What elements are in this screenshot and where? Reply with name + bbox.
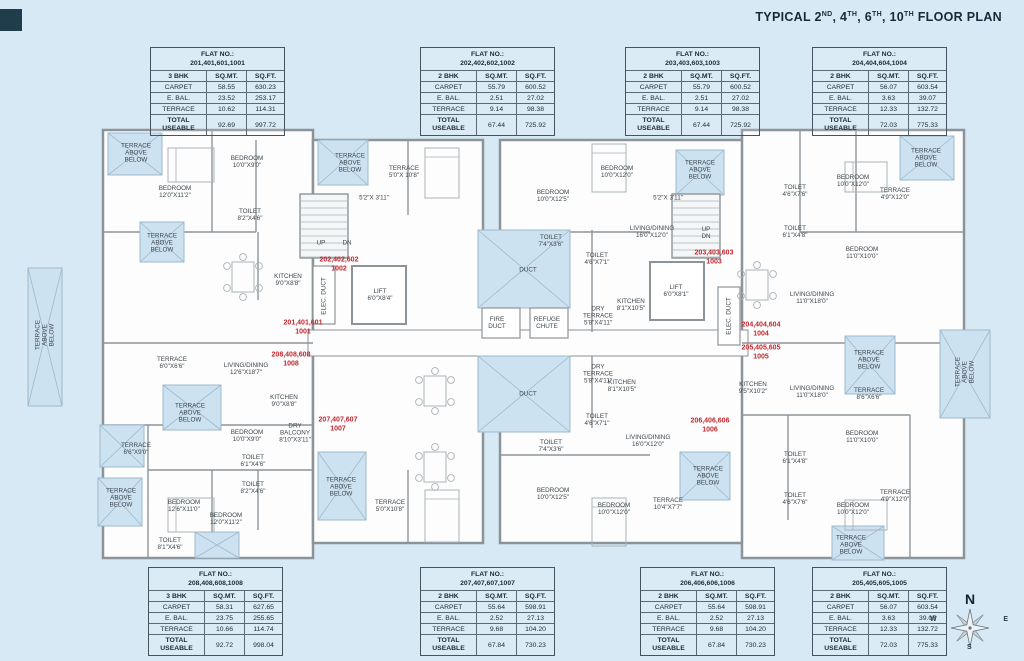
table-cell: TERRACE <box>421 624 477 634</box>
table-row: E. BAL.23.52253.17 <box>151 93 284 104</box>
table-cell: 67.44 <box>682 115 722 134</box>
room-label: KITCHEN 9'0"X8'8" <box>270 394 298 408</box>
flat-no-header: FLAT NO.:206,406,606,1006 <box>641 568 774 591</box>
room-label: DUCT <box>519 390 537 397</box>
room-label: FIRE DUCT <box>488 316 506 330</box>
table-cell: TERRACE <box>151 104 207 114</box>
table-cell: 58.31 <box>205 602 245 612</box>
room-label: TERRACE ABOVE BELOW <box>911 147 941 168</box>
table-cell: SQ.MT. <box>205 591 245 601</box>
room-label: TERRACE 4'9"X12'0" <box>880 489 910 503</box>
table-row: TOTAL USEABLE67.84730.23 <box>641 635 774 654</box>
table-row: E. BAL.2.5127.02 <box>421 93 554 104</box>
table-row: TOTAL USEABLE67.44725.92 <box>421 115 554 134</box>
flat-number-label: 201,401,601 1001 <box>284 319 323 337</box>
compass-rose: N W E S <box>938 592 1002 658</box>
table-row: 2 BHKSQ.MT.SQ.FT. <box>813 591 946 602</box>
flat-number-label: 206,406,606 1006 <box>691 417 730 435</box>
table-cell: 598.91 <box>737 602 774 612</box>
room-label: TOILET 4'6"X7'6" <box>782 492 807 506</box>
room-label: DN <box>342 239 351 246</box>
table-cell: 114.31 <box>247 104 284 114</box>
flat-number-label: 208,408,608 1008 <box>272 351 311 369</box>
floor-plan-sheet: TYPICAL 2ND, 4TH, 6TH, 10TH FLOOR PLAN F… <box>0 0 1024 661</box>
table-cell: 67.84 <box>697 635 737 654</box>
flat-number-label: 204,404,604 1004 <box>742 321 781 339</box>
room-label: TERRACE 5'0"X 10'8" <box>389 165 419 179</box>
table-cell: 725.92 <box>517 115 554 134</box>
room-label: TERRACE ABOVE BELOW <box>106 487 136 508</box>
table-row: CARPET58.55630.23 <box>151 82 284 93</box>
table-cell: E. BAL. <box>421 613 477 623</box>
table-cell: 3 BHK <box>149 591 205 601</box>
flat-no-header: FLAT NO.:208,408,608,1008 <box>149 568 282 591</box>
table-row: TERRACE9.68104.20 <box>641 624 774 635</box>
table-row: 3 BHKSQ.MT.SQ.FT. <box>151 71 284 82</box>
room-label: TERRACE ABOVE BELOW <box>326 476 356 497</box>
table-cell: 55.64 <box>697 602 737 612</box>
room-label: LIFT 6'0"X8'4" <box>367 288 392 302</box>
flat-info-table: FLAT NO.:208,408,608,10083 BHKSQ.MT.SQ.F… <box>148 567 283 656</box>
flat-no-header: FLAT NO.:201,401,601,1001 <box>151 48 284 71</box>
room-label: LIFT 6'0"X8'1" <box>663 284 688 298</box>
table-cell: E. BAL. <box>813 93 869 103</box>
table-cell: 104.20 <box>737 624 774 634</box>
room-label: TOILET 4'6"X7'1" <box>584 252 609 266</box>
table-cell: SQ.MT. <box>869 71 909 81</box>
room-label: TERRACE ABOVE BELOW <box>147 232 177 253</box>
room-label: 5'2"X 3'11" <box>653 194 683 201</box>
room-label: TOILET 8'2"X4'6" <box>240 481 265 495</box>
room-label: TERRACE ABOVE BELOW <box>335 152 365 173</box>
room-label: TERRACE ABOVE BELOW <box>34 320 55 350</box>
table-cell: TERRACE <box>813 104 869 114</box>
table-cell: CARPET <box>813 82 869 92</box>
table-cell: 2 BHK <box>813 591 869 601</box>
table-row: TOTAL USEABLE67.44725.92 <box>626 115 759 134</box>
table-row: TOTAL USEABLE72.03775.33 <box>813 115 946 134</box>
room-label: DUCT <box>519 266 537 273</box>
table-cell: SQ.MT. <box>207 71 247 81</box>
table-row: E. BAL.2.5127.02 <box>626 93 759 104</box>
table-cell: 72.03 <box>869 635 909 654</box>
room-label: TOILET 4'6"X7'1" <box>584 413 609 427</box>
room-label: TERRACE 5'0"X10'8" <box>375 499 405 513</box>
table-cell: CARPET <box>813 602 869 612</box>
table-cell: 730.23 <box>517 635 554 654</box>
room-label: TERRACE ABOVE BELOW <box>854 349 884 370</box>
table-cell: SQ.MT. <box>682 71 722 81</box>
table-cell: 39.07 <box>909 93 946 103</box>
table-cell: 23.75 <box>205 613 245 623</box>
table-cell: SQ.MT. <box>477 71 517 81</box>
table-cell: 2.51 <box>682 93 722 103</box>
compass-east-label: E <box>1003 616 1008 623</box>
table-cell: 10.62 <box>207 104 247 114</box>
table-cell: 725.92 <box>722 115 759 134</box>
room-label: 5'2"X 3'11" <box>359 194 389 201</box>
table-row: TOTAL USEABLE67.84730.23 <box>421 635 554 654</box>
room-label: TOILET 8'1"X4'6" <box>157 537 182 551</box>
room-label: TOILET 7'4"X3'6" <box>538 234 563 248</box>
table-row: 2 BHKSQ.MT.SQ.FT. <box>813 71 946 82</box>
table-cell: 2.52 <box>697 613 737 623</box>
table-cell: TERRACE <box>149 624 205 634</box>
table-cell: 255.65 <box>245 613 282 623</box>
table-cell: 92.69 <box>207 115 247 134</box>
flat-number-label: 203,403,603 1003 <box>695 249 734 267</box>
table-cell: SQ.FT. <box>517 71 554 81</box>
table-cell: 630.23 <box>247 82 284 92</box>
table-cell: TOTAL USEABLE <box>421 635 477 654</box>
table-cell: TOTAL USEABLE <box>813 635 869 654</box>
table-cell: 67.84 <box>477 635 517 654</box>
table-cell: 55.79 <box>682 82 722 92</box>
table-cell: 114.74 <box>245 624 282 634</box>
table-row: E. BAL.23.75255.65 <box>149 613 282 624</box>
table-cell: E. BAL. <box>149 613 205 623</box>
room-label: TOILET 6'1"X4'8" <box>782 225 807 239</box>
table-row: E. BAL.2.5227.13 <box>641 613 774 624</box>
room-label: REFUGE CHUTE <box>534 316 560 330</box>
table-row: 2 BHKSQ.MT.SQ.FT. <box>421 591 554 602</box>
flat-info-table: FLAT NO.:205,405,605,10052 BHKSQ.MT.SQ.F… <box>812 567 947 656</box>
table-cell: 56.07 <box>869 602 909 612</box>
room-label: TOILET 6'1"X4'8" <box>782 451 807 465</box>
table-cell: 2 BHK <box>421 71 477 81</box>
room-label: BEDROOM 10'0"X12'0" <box>837 502 870 516</box>
table-row: CARPET55.64598.91 <box>421 602 554 613</box>
table-cell: E. BAL. <box>421 93 477 103</box>
table-row: CARPET55.79600.52 <box>626 82 759 93</box>
room-label: BEDROOM 11'0"X10'0" <box>846 430 879 444</box>
table-cell: 67.44 <box>477 115 517 134</box>
table-row: 2 BHKSQ.MT.SQ.FT. <box>626 71 759 82</box>
table-cell: TOTAL USEABLE <box>641 635 697 654</box>
compass-south-label: S <box>967 644 972 651</box>
flat-info-table: FLAT NO.:206,406,606,10062 BHKSQ.MT.SQ.F… <box>640 567 775 656</box>
room-label: KITCHEN 9'0"X8'8" <box>274 273 302 287</box>
table-cell: 730.23 <box>737 635 774 654</box>
table-cell: 2.51 <box>477 93 517 103</box>
flat-number-label: 205,405,605 1005 <box>742 344 781 362</box>
room-label: BEDROOM 10'0"X9'0" <box>231 155 264 169</box>
table-cell: 92.72 <box>205 635 245 654</box>
table-cell: 27.13 <box>737 613 774 623</box>
table-cell: 2 BHK <box>641 591 697 601</box>
flat-number-label: 202,402,602 1002 <box>320 256 359 274</box>
table-cell: SQ.FT. <box>909 71 946 81</box>
table-row: CARPET55.64598.91 <box>641 602 774 613</box>
room-label: BEDROOM 10'0"X9'0" <box>231 429 264 443</box>
room-label: ELEC. DUCT <box>320 277 327 314</box>
flat-no-header: FLAT NO.:205,405,605,1005 <box>813 568 946 591</box>
table-cell: SQ.FT. <box>247 71 284 81</box>
room-label: TOILET 6'1"X4'6" <box>240 454 265 468</box>
flat-no-header: FLAT NO.:207,407,607,1007 <box>421 568 554 591</box>
room-label: LIVING/DINING 16'0"X12'0" <box>626 434 670 448</box>
room-label: TERRACE ABOVE BELOW <box>836 534 866 555</box>
table-cell: 27.13 <box>517 613 554 623</box>
table-row: 2 BHKSQ.MT.SQ.FT. <box>421 71 554 82</box>
table-row: CARPET55.79600.52 <box>421 82 554 93</box>
flat-info-table: FLAT NO.:203,403,603,10032 BHKSQ.MT.SQ.F… <box>625 47 760 136</box>
flat-no-header: FLAT NO.:204,404,604,1004 <box>813 48 946 71</box>
flat-info-table: FLAT NO.:202,402,602,10022 BHKSQ.MT.SQ.F… <box>420 47 555 136</box>
table-cell: 2 BHK <box>626 71 682 81</box>
flat-no-header: FLAT NO.:203,403,603,1003 <box>626 48 759 71</box>
table-cell: 998.04 <box>245 635 282 654</box>
room-label: TERRACE ABOVE BELOW <box>121 142 151 163</box>
table-cell: 600.52 <box>517 82 554 92</box>
room-label: TERRACE ABOVE BELOW <box>693 465 723 486</box>
table-cell: 9.68 <box>477 624 517 634</box>
table-cell: CARPET <box>641 602 697 612</box>
room-label: TOILET 7'4"X3'6" <box>538 439 563 453</box>
room-label: KITCHEN 9'5"X10'2" <box>739 381 768 395</box>
flat-info-table: FLAT NO.:207,407,607,10072 BHKSQ.MT.SQ.F… <box>420 567 555 656</box>
flat-info-table: FLAT NO.:201,401,601,10013 BHKSQ.MT.SQ.F… <box>150 47 285 136</box>
room-label: BEDROOM 10'0"X12'0" <box>598 502 631 516</box>
room-label: BEDROOM 11'0"X10'0" <box>846 246 879 260</box>
table-cell: CARPET <box>421 82 477 92</box>
room-label: LIVING/DINING 11'0"X18'0" <box>790 291 834 305</box>
table-row: CARPET56.07603.54 <box>813 602 946 613</box>
table-cell: SQ.MT. <box>869 591 909 601</box>
flat-info-table: FLAT NO.:204,404,604,10042 BHKSQ.MT.SQ.F… <box>812 47 947 136</box>
room-label: UP <box>317 239 326 246</box>
table-row: TERRACE12.33132.72 <box>813 104 946 115</box>
table-cell: 2 BHK <box>421 591 477 601</box>
compass-west-label: W <box>930 616 937 623</box>
table-cell: TOTAL USEABLE <box>151 115 207 134</box>
table-cell: SQ.MT. <box>697 591 737 601</box>
table-cell: 98.38 <box>722 104 759 114</box>
room-label: LIVING/DINING 16'0"X12'0" <box>630 225 674 239</box>
table-cell: 598.91 <box>517 602 554 612</box>
table-row: E. BAL.3.6339.07 <box>813 613 946 624</box>
room-label: DRY BALCONY 8'10"X3'11" <box>279 422 311 443</box>
table-row: TERRACE10.66114.74 <box>149 624 282 635</box>
table-cell: 23.52 <box>207 93 247 103</box>
room-label: ELEC. DUCT <box>725 297 732 334</box>
table-row: 3 BHKSQ.MT.SQ.FT. <box>149 591 282 602</box>
room-label: TOILET 8'2"X4'6" <box>237 208 262 222</box>
room-label: KITCHEN 8'1"X10'5" <box>608 379 637 393</box>
table-row: TERRACE9.1498.38 <box>421 104 554 115</box>
table-cell: CARPET <box>626 82 682 92</box>
table-row: CARPET58.31627.65 <box>149 602 282 613</box>
room-label: TERRACE 6'0"X6'6" <box>157 356 187 370</box>
table-row: E. BAL.3.6339.07 <box>813 93 946 104</box>
room-label: BEDROOM 10'0"X12'5" <box>537 487 570 501</box>
table-cell: E. BAL. <box>641 613 697 623</box>
table-row: E. BAL.2.5227.13 <box>421 613 554 624</box>
room-label: TERRACE ABOVE BELOW <box>685 159 715 180</box>
table-cell: 10.66 <box>205 624 245 634</box>
table-cell: E. BAL. <box>626 93 682 103</box>
table-cell: 600.52 <box>722 82 759 92</box>
room-label: TERRACE 10'4"X7'7" <box>653 497 683 511</box>
table-cell: TERRACE <box>421 104 477 114</box>
room-label: TERRACE 8'6"X6'6" <box>854 387 884 401</box>
table-cell: TERRACE <box>641 624 697 634</box>
room-label: DRY TERRACE 5'8"X4'11" <box>583 305 613 326</box>
table-cell: TOTAL USEABLE <box>421 115 477 134</box>
table-cell: 253.17 <box>247 93 284 103</box>
table-cell: E. BAL. <box>151 93 207 103</box>
room-label: BEDROOM 12'0"X11'2" <box>159 185 192 199</box>
table-cell: TERRACE <box>813 624 869 634</box>
table-cell: 603.54 <box>909 82 946 92</box>
table-cell: E. BAL. <box>813 613 869 623</box>
table-cell: 2 BHK <box>813 71 869 81</box>
table-cell: SQ.FT. <box>245 591 282 601</box>
table-cell: 55.64 <box>477 602 517 612</box>
table-cell: 3 BHK <box>151 71 207 81</box>
table-cell: 58.55 <box>207 82 247 92</box>
table-cell: CARPET <box>149 602 205 612</box>
room-label: BEDROOM 10'0"X12'0" <box>601 165 634 179</box>
table-cell: 627.65 <box>245 602 282 612</box>
table-cell: 775.33 <box>909 115 946 134</box>
table-cell: 12.33 <box>869 104 909 114</box>
table-cell: 104.20 <box>517 624 554 634</box>
room-label: BEDROOM 10'0"X12'5" <box>537 189 570 203</box>
table-row: TERRACE9.1498.38 <box>626 104 759 115</box>
table-cell: SQ.MT. <box>477 591 517 601</box>
table-row: TERRACE9.68104.20 <box>421 624 554 635</box>
table-cell: 132.72 <box>909 104 946 114</box>
room-label: TERRACE ABOVE BELOW <box>175 402 205 423</box>
room-label: BEDROOM 10'0"X12'0" <box>837 174 870 188</box>
table-cell: SQ.FT. <box>517 591 554 601</box>
table-cell: 3.63 <box>869 93 909 103</box>
room-label: LIVING/DINING 12'6"X18'7" <box>224 362 268 376</box>
room-label: BEDROOM 12'0"X11'2" <box>210 512 243 526</box>
table-cell: TOTAL USEABLE <box>813 115 869 134</box>
table-cell: 9.14 <box>682 104 722 114</box>
table-cell: 9.14 <box>477 104 517 114</box>
table-cell: CARPET <box>421 602 477 612</box>
table-cell: 27.02 <box>722 93 759 103</box>
table-cell: 997.72 <box>247 115 284 134</box>
table-cell: 98.38 <box>517 104 554 114</box>
table-row: TOTAL USEABLE92.72998.04 <box>149 635 282 654</box>
table-row: TERRACE10.62114.31 <box>151 104 284 115</box>
room-label: UP DN <box>701 226 710 240</box>
table-cell: CARPET <box>151 82 207 92</box>
table-cell: TOTAL USEABLE <box>149 635 205 654</box>
table-cell: 56.07 <box>869 82 909 92</box>
table-row: TERRACE12.33132.72 <box>813 624 946 635</box>
room-label: TERRACE ABOVE BELOW <box>954 357 975 387</box>
room-label: TERRACE 4'9"X12'0" <box>880 187 910 201</box>
flat-no-header: FLAT NO.:202,402,602,1002 <box>421 48 554 71</box>
table-row: 2 BHKSQ.MT.SQ.FT. <box>641 591 774 602</box>
table-cell: TERRACE <box>626 104 682 114</box>
table-cell: TOTAL USEABLE <box>626 115 682 134</box>
room-label: LIVING/DINING 11'0"X18'0" <box>790 385 834 399</box>
room-label: TERRACE 6'6"X9'0" <box>121 442 151 456</box>
room-label: TOILET 4'6"X7'6" <box>782 184 807 198</box>
table-cell: 2.52 <box>477 613 517 623</box>
table-cell: SQ.FT. <box>722 71 759 81</box>
table-cell: 12.33 <box>869 624 909 634</box>
room-label: BEDROOM 12'6"X11'0" <box>168 499 201 513</box>
table-cell: 9.68 <box>697 624 737 634</box>
table-cell: SQ.FT. <box>737 591 774 601</box>
flat-number-label: 207,407,607 1007 <box>319 416 358 434</box>
compass-north-label: N <box>938 592 1002 606</box>
room-label: KITCHEN 8'1"X10'5" <box>617 298 646 312</box>
table-cell: 3.63 <box>869 613 909 623</box>
table-cell: 55.79 <box>477 82 517 92</box>
table-row: TOTAL USEABLE72.03775.33 <box>813 635 946 654</box>
table-cell: 27.02 <box>517 93 554 103</box>
table-cell: 72.03 <box>869 115 909 134</box>
table-row: TOTAL USEABLE92.69997.72 <box>151 115 284 134</box>
table-row: CARPET56.07603.54 <box>813 82 946 93</box>
